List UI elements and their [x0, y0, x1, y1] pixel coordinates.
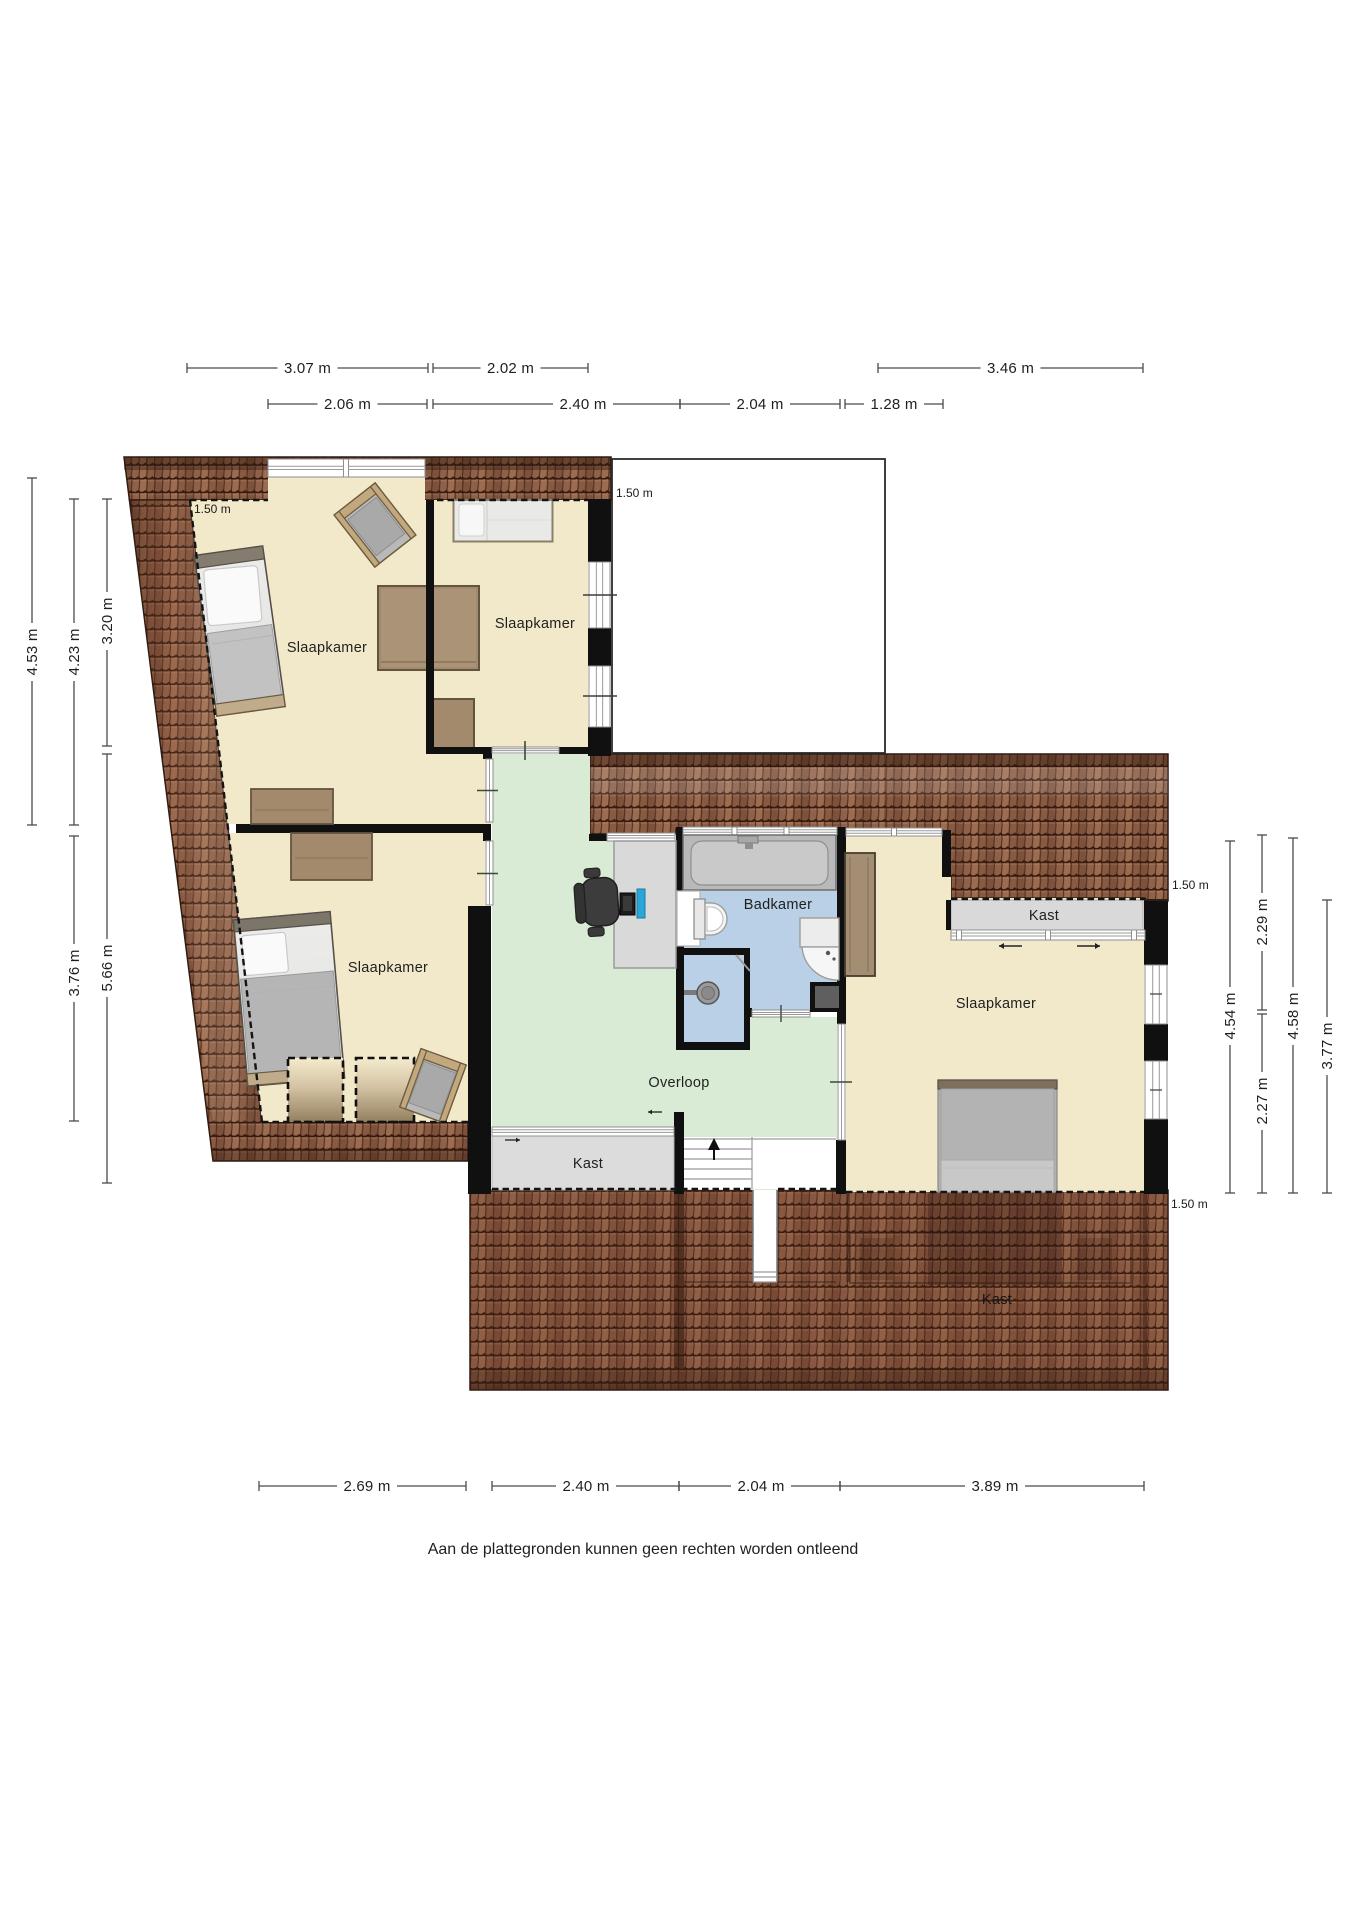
- svg-text:3.89 m: 3.89 m: [971, 1478, 1018, 1495]
- svg-text:Slaapkamer: Slaapkamer: [495, 616, 575, 632]
- svg-text:3.46 m: 3.46 m: [987, 360, 1034, 377]
- svg-text:3.20 m: 3.20 m: [99, 597, 116, 644]
- svg-text:2.06 m: 2.06 m: [324, 396, 371, 413]
- svg-text:1.28 m: 1.28 m: [870, 396, 917, 413]
- svg-text:2.40 m: 2.40 m: [559, 396, 606, 413]
- svg-text:2.69 m: 2.69 m: [343, 1478, 390, 1495]
- svg-text:2.04 m: 2.04 m: [737, 1478, 784, 1495]
- svg-text:1.50 m: 1.50 m: [1171, 1197, 1208, 1211]
- svg-text:4.53 m: 4.53 m: [24, 628, 41, 675]
- svg-text:5.66 m: 5.66 m: [99, 944, 116, 991]
- svg-text:2.02 m: 2.02 m: [487, 360, 534, 377]
- svg-text:Overloop: Overloop: [648, 1075, 709, 1091]
- svg-text:2.40 m: 2.40 m: [562, 1478, 609, 1495]
- svg-text:Kast: Kast: [573, 1156, 603, 1172]
- svg-text:Kast: Kast: [1029, 908, 1059, 924]
- svg-text:Badkamer: Badkamer: [744, 897, 813, 913]
- svg-text:1.50 m: 1.50 m: [194, 502, 231, 516]
- svg-text:Aan de plattegronden kunnen ge: Aan de plattegronden kunnen geen rechten…: [428, 1541, 859, 1558]
- svg-text:Slaapkamer: Slaapkamer: [956, 996, 1036, 1012]
- svg-text:Kast: Kast: [982, 1292, 1012, 1308]
- svg-text:4.54 m: 4.54 m: [1222, 992, 1239, 1039]
- svg-text:2.29 m: 2.29 m: [1254, 898, 1271, 945]
- svg-text:2.27 m: 2.27 m: [1254, 1077, 1271, 1124]
- svg-text:Slaapkamer: Slaapkamer: [348, 960, 428, 976]
- svg-text:3.76 m: 3.76 m: [66, 949, 83, 996]
- svg-text:2.04 m: 2.04 m: [736, 396, 783, 413]
- svg-text:4.58 m: 4.58 m: [1285, 992, 1302, 1039]
- svg-text:4.23 m: 4.23 m: [66, 628, 83, 675]
- svg-text:1.50 m: 1.50 m: [616, 486, 653, 500]
- svg-text:3.07 m: 3.07 m: [284, 360, 331, 377]
- svg-text:3.77 m: 3.77 m: [1319, 1022, 1336, 1069]
- svg-text:1.50 m: 1.50 m: [1172, 878, 1209, 892]
- svg-text:Slaapkamer: Slaapkamer: [287, 640, 367, 656]
